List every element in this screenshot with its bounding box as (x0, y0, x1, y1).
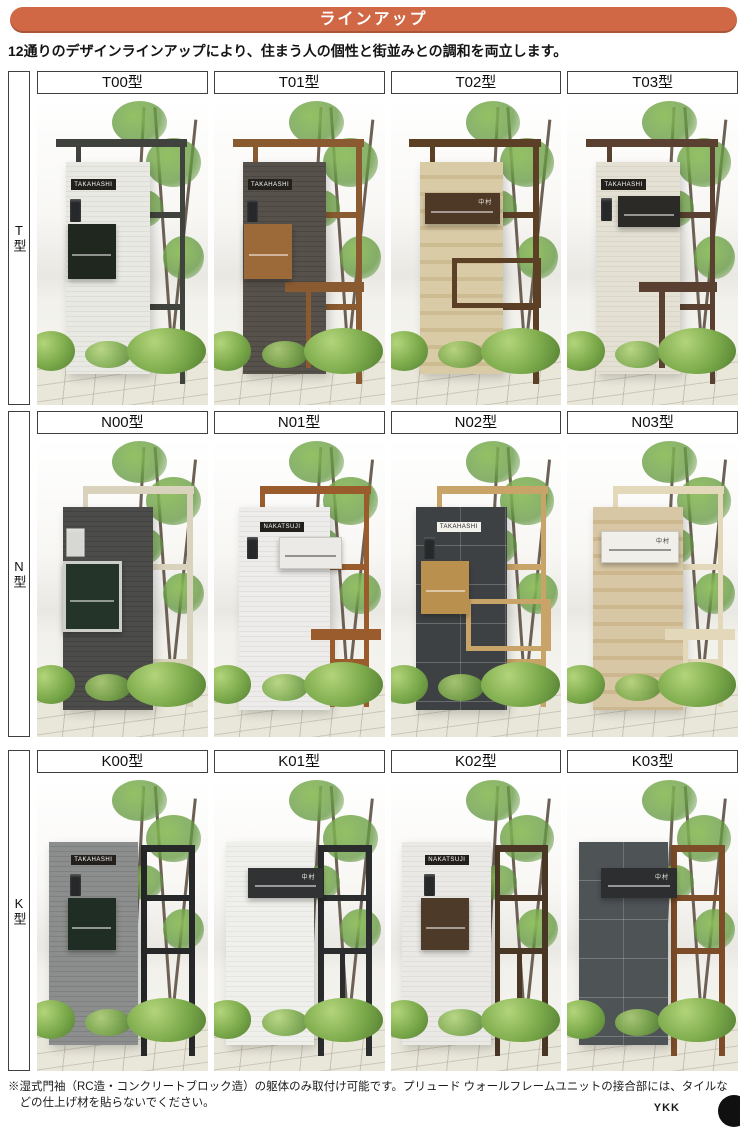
mailbox: NAKATSUJI (279, 537, 342, 569)
row-side-label-box: T型 (8, 71, 30, 405)
mailbox-nameplate: 中村 (655, 872, 669, 881)
mailbox-nameplate: 中村 (302, 872, 316, 881)
product-cell: N00型 (37, 411, 208, 737)
shrub (481, 328, 560, 374)
frame-rung (318, 895, 371, 901)
product-photo: NAKATSUJI NAKATSUJI (214, 438, 385, 737)
product-type-label: T00型 (37, 71, 208, 94)
product-type-label: N03型 (567, 411, 738, 434)
frame-rung (680, 304, 710, 310)
mailbox-nameplate: 中村 (478, 197, 492, 206)
mail-slot (426, 590, 465, 592)
shrub (127, 998, 206, 1042)
nameplate: TAKAHASHI (71, 855, 115, 866)
product-cell: N01型 NAKATSUJI (214, 411, 385, 737)
product-row: K型 K00型 TA (8, 750, 738, 1071)
frame-top-beam (437, 486, 548, 494)
product-photo: TAKAHASHI TAKAHASHI (391, 438, 562, 737)
frame-rung (503, 212, 533, 218)
shrub (481, 662, 560, 707)
row-side-label: T型 (10, 223, 29, 253)
product-type-label: T01型 (214, 71, 385, 94)
shrub (262, 1009, 308, 1035)
shrub (262, 674, 308, 701)
nameplate: TAKAHASHI (437, 522, 481, 533)
product-photo: TAKAHASHI TAKAHASHI (37, 98, 208, 405)
product-cell: T00型 TAKAHASHI (37, 71, 208, 405)
intercom (424, 874, 435, 896)
nameplate: TAKAHASHI (601, 179, 645, 190)
mail-slot (70, 600, 113, 602)
tree-foliage (112, 101, 167, 144)
mailbox: 中村 (601, 531, 678, 563)
tree-foliage (642, 101, 697, 144)
product-type-label: N00型 (37, 411, 208, 434)
product-type-label: N01型 (214, 411, 385, 434)
nameplate: TAKAHASHI (71, 179, 115, 190)
row-side-label: N型 (10, 559, 29, 589)
frame-top-beam (495, 845, 549, 852)
tree-foliage (694, 909, 735, 950)
shrub (658, 998, 737, 1042)
frame-top-beam (613, 486, 724, 494)
product-cell: K00型 TAKAHASHI (37, 750, 208, 1071)
frame-top-beam (318, 845, 372, 852)
intercom (66, 528, 85, 557)
lineup-banner: ラインアップ (10, 7, 737, 33)
tree-foliage (112, 441, 167, 483)
frame-rung (671, 948, 724, 954)
product-type-label: K02型 (391, 750, 562, 773)
tree-foliage (642, 441, 697, 483)
mailbox: 中村 (248, 868, 323, 897)
shrub (438, 1009, 484, 1035)
frame-rung (671, 895, 724, 901)
frame-rung (326, 304, 356, 310)
frame-top-beam (83, 486, 194, 494)
product-type-label: T02型 (391, 71, 562, 94)
brand-logo-mark (718, 1095, 740, 1127)
shrub (262, 341, 308, 369)
frame-bench (285, 282, 364, 292)
product-photo: TAKAHASHI TAKAHASHI (214, 98, 385, 405)
frame-bench (639, 282, 718, 292)
frame-rung (680, 212, 710, 218)
frame-rung (150, 212, 180, 218)
mailbox: TAKAHASHI (68, 898, 116, 951)
product-type-label: K03型 (567, 750, 738, 773)
shrub (85, 341, 131, 369)
product-grid: T型 T00型 TA (8, 71, 738, 1071)
frame-rung (141, 948, 194, 954)
frame-bench (665, 629, 735, 639)
mail-slot (426, 927, 465, 929)
product-row: N型 N00型 (8, 411, 738, 737)
mailbox: TAKAHASHI (68, 224, 116, 279)
tree-foliage (694, 573, 735, 615)
mail-slot (285, 555, 335, 557)
product-photo: TAKAHASHI TAKAHASHI (567, 98, 738, 405)
mailbox (63, 561, 122, 633)
mail-slot (255, 885, 317, 887)
frame-rung (326, 212, 356, 218)
tree-foliage (642, 780, 697, 821)
frame-rung (153, 564, 187, 571)
shrub (658, 662, 737, 707)
product-photo: 中村 中村 (567, 438, 738, 737)
frame-rung (495, 895, 548, 901)
shrub (127, 662, 206, 707)
mail-slot (609, 549, 671, 551)
product-photo: TAKAHASHI TAKAHASHI (37, 777, 208, 1071)
intercom (70, 874, 81, 896)
nameplate: NAKATSUJI (425, 855, 469, 866)
product-cell: N03型 中村 (567, 411, 738, 737)
shrub (615, 674, 661, 701)
product-cell: T02型 中村 (391, 71, 562, 405)
shrub (304, 328, 383, 374)
tree-foliage (517, 909, 558, 950)
tree-foliage (163, 909, 204, 950)
nameplate: NAKATSUJI (260, 522, 304, 533)
intercom (247, 199, 258, 222)
mail-slot (249, 254, 288, 256)
product-cell: T03型 TAKAHASHI (567, 71, 738, 405)
mailbox: 中村 (425, 193, 500, 224)
row-side-label-box: K型 (8, 750, 30, 1071)
shrub (481, 998, 560, 1042)
frame-top-beam (141, 845, 195, 852)
product-cell: K03型 中村 (567, 750, 738, 1071)
footnote-text: ※湿式門袖（RC造・コンクリートブロック造）の躯体のみ取付け可能です。プリュード… (8, 1079, 734, 1111)
tree-foliage (112, 780, 167, 821)
tree-foliage (340, 573, 381, 615)
shrub (85, 1009, 131, 1035)
product-cell: N02型 TAKAHASHI (391, 411, 562, 737)
frame-lower-box (452, 258, 541, 308)
shrub (304, 998, 383, 1042)
nameplate: TAKAHASHI (248, 179, 292, 190)
mail-slot (624, 214, 674, 216)
shrub (615, 1009, 661, 1035)
tree-foliage (340, 909, 381, 950)
tree-foliage (466, 101, 521, 144)
mailbox: TAKAHASHI (618, 196, 679, 227)
shrub (127, 328, 206, 374)
frame-lower-box (466, 599, 551, 651)
product-cell: T01型 TAKAHASHI (214, 71, 385, 405)
product-cell: K01型 中村 (214, 750, 385, 1071)
intro-text: 12通りのデザインラインアップにより、住まう人の個性と街並みとの調和を両立します… (8, 41, 734, 61)
mail-slot (72, 927, 111, 929)
product-type-label: K01型 (214, 750, 385, 773)
shrub (85, 674, 131, 701)
brand-logo-text: YKK (654, 1102, 680, 1114)
product-photo: 中村 中村 (567, 777, 738, 1071)
mail-slot (608, 885, 670, 887)
row-side-label: K型 (10, 896, 29, 926)
frame-rung (141, 895, 194, 901)
frame-top-beam (260, 486, 371, 494)
tree-foliage (289, 101, 344, 144)
product-type-label: T03型 (567, 71, 738, 94)
mailbox: NAKATSUJI (421, 898, 469, 951)
tree-foliage (163, 573, 204, 615)
shrub (304, 662, 383, 707)
mail-slot (72, 254, 111, 256)
product-row: T型 T00型 TA (8, 71, 738, 405)
frame-bench (311, 629, 381, 639)
frame-rung (150, 304, 180, 310)
frame-rung (683, 564, 717, 571)
product-cell: K02型 NAKATSUJI (391, 750, 562, 1071)
shrub (615, 341, 661, 369)
intercom (424, 537, 435, 559)
row-side-label-box: N型 (8, 411, 30, 737)
tree-foliage (289, 441, 344, 483)
product-photo: 中村 中村 (214, 777, 385, 1071)
frame-top-beam (671, 845, 725, 852)
mailbox-nameplate: 中村 (656, 536, 670, 545)
product-photo: NAKATSUJI NAKATSUJI (391, 777, 562, 1071)
mail-slot (431, 211, 493, 213)
frame-rung (507, 564, 541, 571)
intercom (70, 199, 81, 222)
mailbox: 中村 (601, 868, 676, 897)
tree-foliage (289, 780, 344, 821)
product-photo: 中村 中村 (391, 98, 562, 405)
intercom (601, 198, 612, 221)
tree-foliage (466, 441, 521, 483)
mailbox: TAKAHASHI (421, 561, 469, 615)
product-photo (37, 438, 208, 737)
mailbox: TAKAHASHI (244, 224, 292, 279)
intercom (247, 537, 258, 559)
product-type-label: K00型 (37, 750, 208, 773)
product-type-label: N02型 (391, 411, 562, 434)
tree-foliage (466, 780, 521, 821)
